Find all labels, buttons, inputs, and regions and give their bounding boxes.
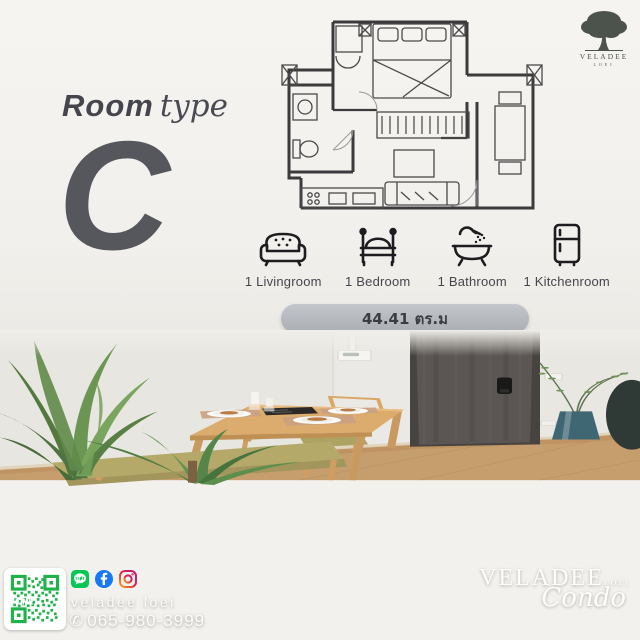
- feature-kitchen: 1 Kitchenroom: [520, 222, 615, 289]
- floor-plan: [281, 10, 543, 215]
- feature-label: 1 Kitchenroom: [524, 274, 610, 289]
- phone-number: 065-980-3999: [87, 611, 205, 630]
- sofa-icon: [257, 222, 309, 268]
- wall-socket: [541, 421, 556, 425]
- contact-phone[interactable]: ✆065-980-3999: [69, 611, 205, 631]
- line-icon[interactable]: [71, 570, 89, 588]
- floorplan-walls: [289, 22, 533, 208]
- feature-label: 1 Livingroom: [245, 274, 322, 289]
- area-badge-label: 44.41 ตร.ม: [362, 307, 448, 331]
- watermark-script: Condo: [440, 588, 626, 609]
- bed-icon: [355, 222, 401, 268]
- floorplan-furniture: [282, 24, 542, 208]
- line-qr-code[interactable]: LINE: [4, 568, 66, 630]
- instagram-icon[interactable]: [119, 570, 137, 588]
- brand-watermark: VELADEELOEI Condo: [440, 566, 630, 609]
- fridge-icon: [550, 222, 584, 268]
- glass-vase: [552, 411, 600, 439]
- feature-livingroom: 1 Livingroom: [236, 222, 331, 289]
- room-type-letter: C: [58, 118, 170, 273]
- feature-list: 1 Livingroom 1 Bedroom: [236, 222, 614, 289]
- qr-line-label: LINE: [15, 597, 34, 606]
- brand-logo-name: VELADEE: [580, 52, 629, 61]
- poster-canvas: Roomtype C: [0, 0, 640, 640]
- phone-icon: ✆: [69, 611, 84, 631]
- feature-bathroom: 1 Bathroom: [425, 222, 520, 289]
- photo-fade: [0, 330, 640, 356]
- facebook-icon[interactable]: [95, 570, 113, 588]
- feature-label: 1 Bathroom: [438, 274, 507, 289]
- social-icons: [71, 570, 137, 588]
- feature-label: 1 Bedroom: [345, 274, 410, 289]
- type-word: type: [160, 88, 228, 124]
- contact-username: veladee loei: [71, 594, 176, 610]
- brand-logo: VELADEE LOEI: [573, 6, 635, 68]
- feature-bedroom: 1 Bedroom: [331, 222, 426, 289]
- brand-logo-sub: LOEI: [593, 62, 614, 67]
- area-badge: 44.41 ตร.ม: [281, 304, 529, 333]
- tree-icon: [581, 11, 627, 51]
- bathtub-icon: [448, 222, 496, 268]
